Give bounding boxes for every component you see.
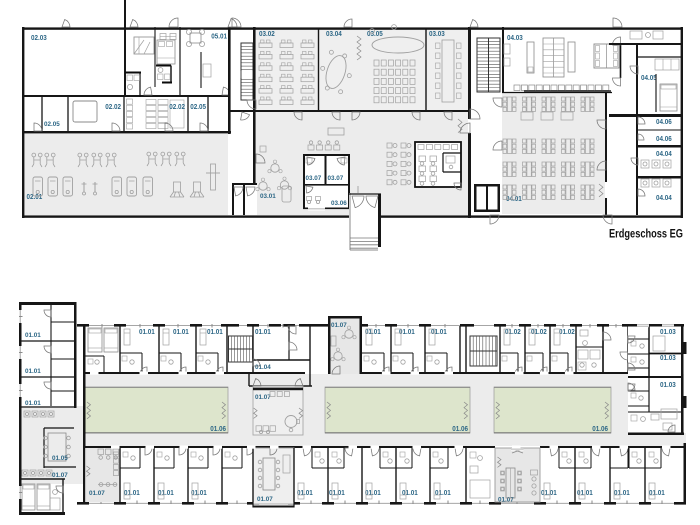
svg-text:04.04: 04.04 <box>656 151 672 158</box>
svg-text:04.04: 04.04 <box>656 195 672 202</box>
svg-text:04.03: 04.03 <box>507 35 523 42</box>
svg-text:01.01: 01.01 <box>124 490 140 497</box>
svg-text:01.01: 01.01 <box>173 329 189 336</box>
svg-text:02.03: 02.03 <box>31 35 47 42</box>
svg-text:01.01: 01.01 <box>365 490 381 497</box>
svg-text:Erdgeschoss EG: Erdgeschoss EG <box>609 229 683 241</box>
svg-text:01.03: 01.03 <box>660 329 676 336</box>
svg-text:01.01: 01.01 <box>399 329 415 336</box>
svg-text:01.01: 01.01 <box>365 329 381 336</box>
svg-text:05.01: 05.01 <box>211 34 227 41</box>
svg-text:01.07: 01.07 <box>331 322 347 329</box>
svg-text:01.06: 01.06 <box>452 426 468 433</box>
svg-text:01.01: 01.01 <box>25 368 41 375</box>
svg-text:01.01: 01.01 <box>158 490 174 497</box>
svg-text:03.02: 03.02 <box>259 31 275 38</box>
svg-text:01.06: 01.06 <box>210 426 226 433</box>
svg-text:03.01: 03.01 <box>260 193 276 200</box>
svg-text:01.02: 01.02 <box>531 329 547 336</box>
svg-text:02.02: 02.02 <box>169 104 185 111</box>
svg-text:01.04: 01.04 <box>255 364 271 371</box>
svg-text:01.07: 01.07 <box>257 496 273 503</box>
svg-text:03.04: 03.04 <box>326 31 342 38</box>
svg-text:01.01: 01.01 <box>255 329 271 336</box>
svg-text:01.06: 01.06 <box>592 426 608 433</box>
svg-text:04.06: 04.06 <box>656 119 672 126</box>
svg-text:01.01: 01.01 <box>139 329 155 336</box>
svg-text:02.05: 02.05 <box>44 121 60 128</box>
svg-text:01.01: 01.01 <box>25 332 41 339</box>
svg-text:02.05: 02.05 <box>190 104 206 111</box>
svg-text:01.05: 01.05 <box>52 455 68 462</box>
svg-text:01.03: 01.03 <box>660 355 676 362</box>
svg-text:03.07: 03.07 <box>306 175 322 182</box>
svg-text:03.03: 03.03 <box>429 31 445 38</box>
svg-text:01.01: 01.01 <box>614 490 630 497</box>
svg-text:01.01: 01.01 <box>431 329 447 336</box>
svg-text:02.01: 02.01 <box>27 194 43 201</box>
svg-text:01.02: 01.02 <box>505 329 521 336</box>
svg-text:03.06: 03.06 <box>331 200 347 207</box>
svg-text:01.07: 01.07 <box>89 490 105 497</box>
svg-text:01.01: 01.01 <box>329 490 345 497</box>
svg-text:01.07: 01.07 <box>255 394 271 401</box>
svg-text:02.02: 02.02 <box>105 104 121 111</box>
svg-text:04.05: 04.05 <box>641 75 657 82</box>
svg-text:01.01: 01.01 <box>541 490 557 497</box>
svg-text:01.01: 01.01 <box>191 490 207 497</box>
svg-text:01.01: 01.01 <box>435 490 451 497</box>
svg-text:01.01: 01.01 <box>402 490 418 497</box>
svg-text:01.01: 01.01 <box>207 329 223 336</box>
svg-text:01.03: 01.03 <box>660 382 676 389</box>
svg-text:01.01: 01.01 <box>649 490 665 497</box>
svg-text:04.06: 04.06 <box>656 136 672 143</box>
svg-text:01.01: 01.01 <box>297 490 313 497</box>
svg-text:01.01: 01.01 <box>25 400 41 407</box>
svg-text:01.07: 01.07 <box>52 472 68 479</box>
svg-text:03.05: 03.05 <box>367 31 383 38</box>
svg-text:01.02: 01.02 <box>559 329 575 336</box>
svg-text:03.07: 03.07 <box>328 175 344 182</box>
